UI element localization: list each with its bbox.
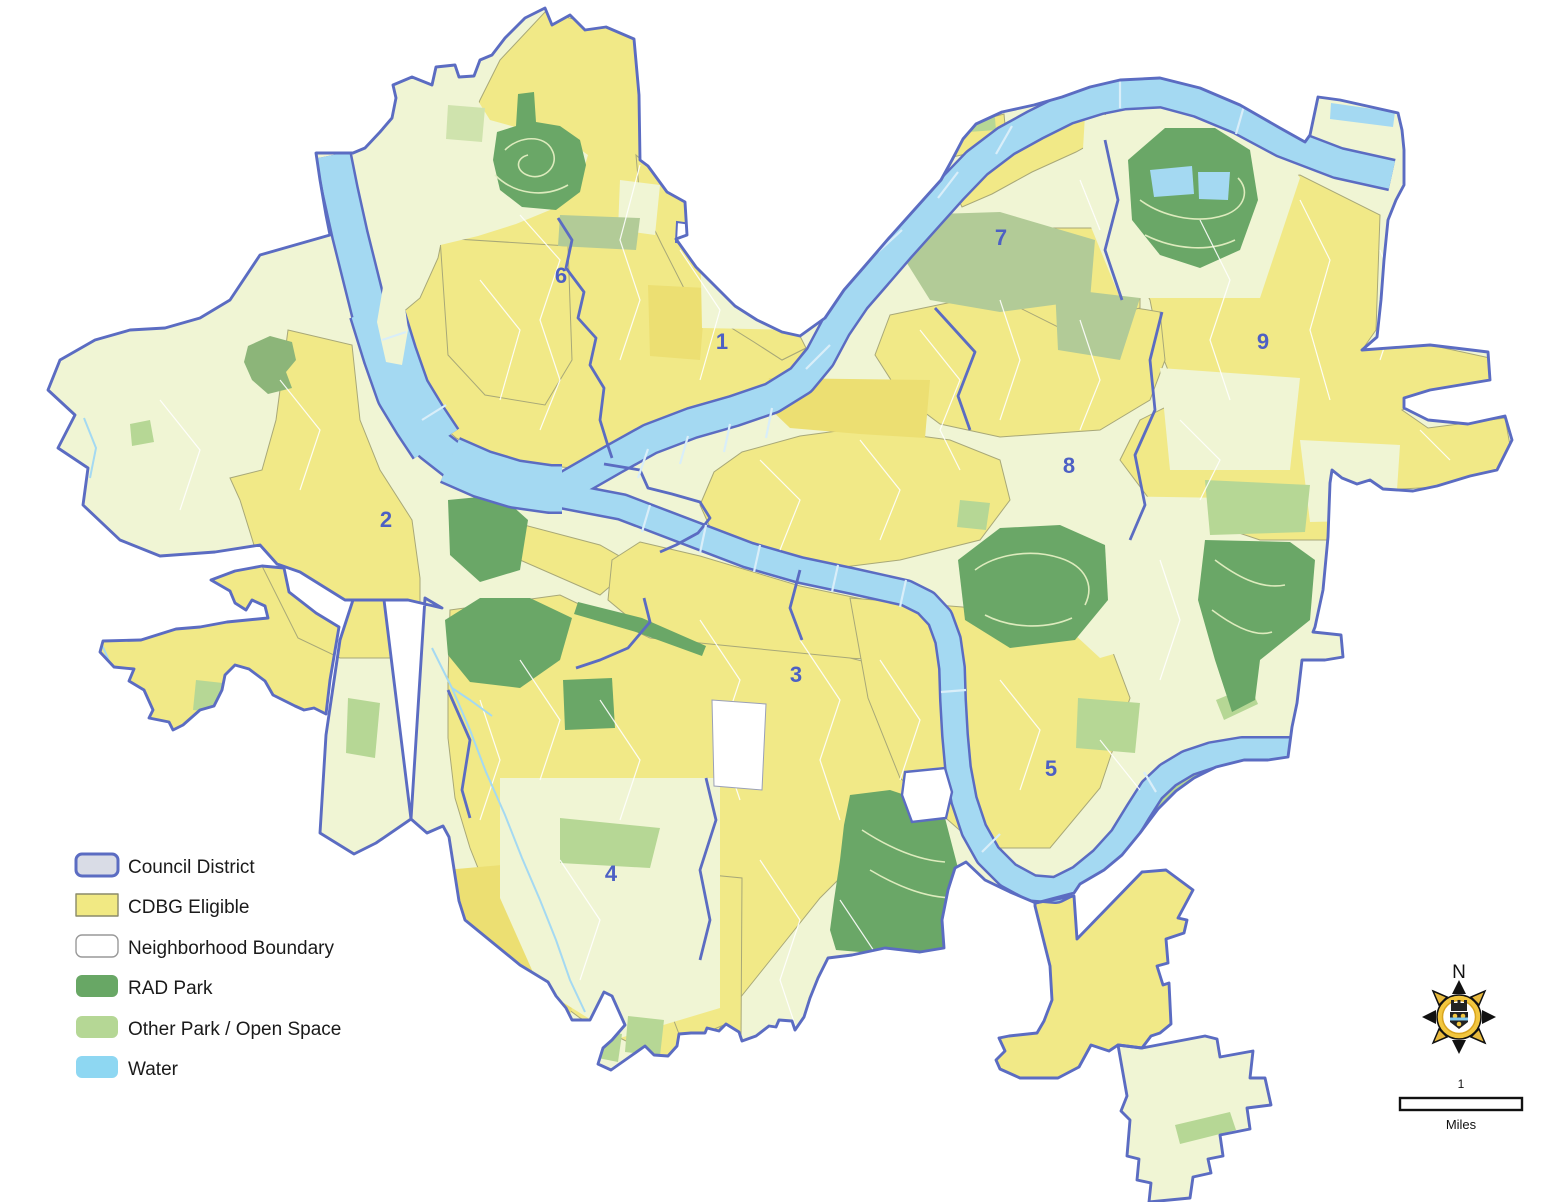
svg-text:8: 8 bbox=[1063, 453, 1075, 478]
svg-text:4: 4 bbox=[605, 861, 618, 886]
svg-text:1: 1 bbox=[716, 329, 728, 354]
svg-text:Council District: Council District bbox=[128, 857, 255, 878]
svg-text:Miles: Miles bbox=[1446, 1117, 1477, 1132]
svg-text:9: 9 bbox=[1257, 329, 1269, 354]
svg-text:3: 3 bbox=[790, 662, 802, 687]
svg-text:Neighborhood Boundary: Neighborhood Boundary bbox=[128, 938, 334, 959]
svg-text:6: 6 bbox=[555, 263, 567, 288]
svg-text:5: 5 bbox=[1045, 756, 1057, 781]
svg-text:RAD Park: RAD Park bbox=[128, 978, 213, 999]
svg-text:Other Park / Open Space: Other Park / Open Space bbox=[128, 1019, 341, 1040]
svg-text:1: 1 bbox=[1458, 1077, 1465, 1091]
svg-text:N: N bbox=[1452, 962, 1466, 983]
svg-text:Water: Water bbox=[128, 1059, 179, 1080]
svg-text:7: 7 bbox=[995, 225, 1007, 250]
svg-text:2: 2 bbox=[380, 507, 392, 532]
svg-text:CDBG Eligible: CDBG Eligible bbox=[128, 897, 249, 918]
